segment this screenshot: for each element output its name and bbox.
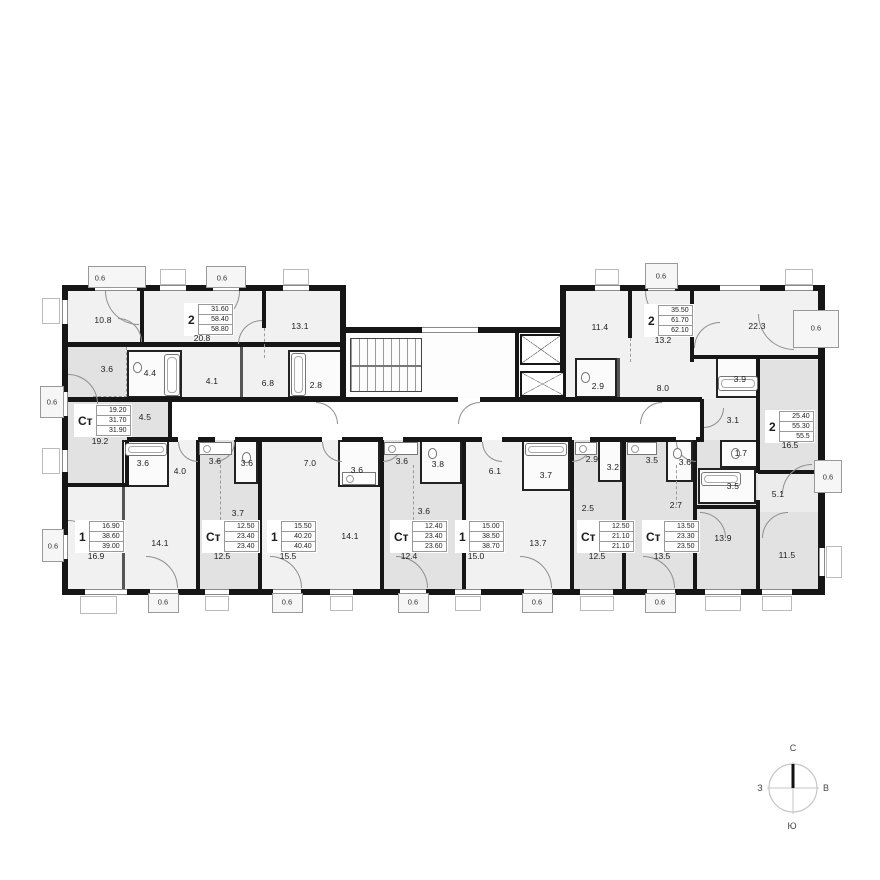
bay-window (42, 448, 60, 474)
wall-segment (515, 333, 519, 397)
window-mark (580, 589, 613, 595)
kitchen-counter (199, 442, 232, 455)
room-area-label: 13.7 (529, 538, 546, 548)
wall-segment (617, 358, 620, 397)
unit-type: 2 (185, 304, 198, 335)
unit-info-studio-b2[interactable]: Ст 12.4023.4023.60 (391, 521, 447, 552)
unit-type: 2 (766, 411, 779, 442)
dashed-line (676, 465, 677, 505)
balcony-area-label: 0.6 (655, 598, 665, 607)
window-mark (283, 285, 309, 291)
room-area-label: 1.7 (735, 448, 747, 458)
unit-main-area: 13.5 (654, 551, 671, 561)
window-mark (819, 548, 825, 576)
bay-window (705, 596, 741, 611)
unit-main-area: 15.5 (280, 551, 297, 561)
room-area-label: 3.6 (418, 506, 430, 516)
bay-window (283, 269, 309, 285)
room-area-label: 2.9 (586, 454, 598, 464)
wall-segment (340, 327, 422, 333)
balcony-area-label: 0.6 (95, 274, 105, 283)
dashed-line (630, 338, 631, 362)
bay-window (205, 596, 229, 611)
room-area-label: 3.6 (679, 457, 691, 467)
room-area-label: 4.0 (174, 466, 186, 476)
bathtub (525, 443, 567, 456)
room-area-label: 3.6 (396, 456, 408, 466)
balcony-area-label: 0.6 (47, 398, 57, 407)
bay-window (330, 596, 353, 611)
bay-window (826, 546, 842, 578)
unit-info-studio-b1[interactable]: Ст 12.5023.4023.40 (203, 521, 259, 552)
window-mark (160, 285, 186, 291)
window-mark (62, 450, 68, 472)
wall-segment (693, 440, 697, 589)
compass-west-label: З (757, 783, 762, 793)
compass-north-label: С (790, 743, 797, 753)
room-area-label: 3.6 (137, 458, 149, 468)
wall-segment (380, 440, 384, 589)
room-area-label: 2.5 (582, 503, 594, 513)
wall-segment (240, 347, 243, 397)
unit-info-1room-b2[interactable]: 1 15.5040.2040.40 (268, 521, 316, 552)
unit-type: Ст (578, 521, 599, 552)
room-area-label: 3.6 (351, 465, 363, 475)
window-mark (762, 589, 792, 595)
room-area-label: 10.8 (94, 315, 111, 325)
bathtub (291, 353, 306, 396)
unit-main-area: 16.5 (782, 440, 799, 450)
unit-main-area: 20.8 (194, 333, 211, 343)
wall-segment (756, 358, 760, 473)
room-area-label: 7.0 (304, 458, 316, 468)
kitchen-counter (627, 442, 657, 455)
window-mark (705, 589, 741, 595)
window-mark (455, 589, 481, 595)
bay-window (80, 596, 117, 614)
balcony-area-label: 0.6 (282, 598, 292, 607)
toilet (581, 372, 590, 383)
unit-main-area: 15.0 (468, 551, 485, 561)
wall-segment (693, 505, 758, 509)
dashed-line (264, 328, 265, 358)
elevator-shaft (520, 371, 565, 397)
wall-segment (235, 437, 322, 442)
wall-segment (62, 483, 129, 487)
window-mark (785, 285, 813, 291)
window-mark (85, 589, 127, 595)
balcony-area-label: 0.6 (823, 473, 833, 482)
window-mark (62, 300, 68, 324)
room-area-label: 3.5 (727, 481, 739, 491)
staircase (350, 338, 422, 392)
room-area-label: 8.0 (657, 383, 669, 393)
unit-info-studio-b4[interactable]: Ст 13.5023.3023.50 (643, 521, 699, 552)
toilet (133, 362, 142, 373)
balcony-area-label: 0.6 (811, 324, 821, 333)
room-area-label: 11.4 (592, 322, 609, 332)
unit-type: 1 (76, 521, 89, 552)
compass-rose: С Ю З В (748, 738, 840, 838)
window-mark (205, 589, 229, 595)
room-area-label: 3.6 (101, 364, 113, 374)
bay-window (160, 269, 186, 285)
wall-segment (258, 440, 262, 589)
bay-window (580, 596, 614, 611)
room-area-label: 3.5 (646, 455, 658, 465)
room-area-label: 3.6 (209, 456, 221, 466)
toilet (428, 448, 437, 459)
room-area-label: 14.1 (151, 538, 168, 548)
room-area-label: 4.5 (139, 412, 151, 422)
unit-info-1room-b3[interactable]: 1 15.0038.5038.70 (456, 521, 504, 552)
wall-segment (62, 397, 458, 402)
room-area-label: 14.1 (341, 531, 358, 541)
unit-main-area: 19.2 (92, 436, 109, 446)
unit-info-2room-right[interactable]: 2 25.4055.3055.5 (766, 411, 814, 442)
room-area-label: 13.1 (291, 321, 308, 331)
balcony-area-label: 0.6 (408, 598, 418, 607)
unit-type: 1 (456, 521, 469, 552)
room-area-label: 13.9 (714, 533, 731, 543)
room-area-label: 2.9 (592, 381, 604, 391)
dashed-line (413, 465, 414, 520)
room-area-label: 4.1 (206, 376, 218, 386)
room-area-label: 3.8 (432, 459, 444, 469)
bay-window (595, 269, 619, 285)
wall-segment (342, 437, 383, 442)
wall-segment (262, 288, 266, 328)
room-area-label: 3.2 (607, 462, 619, 472)
bay-window (785, 269, 813, 285)
window-mark (595, 285, 620, 291)
unit-type: 2 (645, 305, 658, 336)
unit-info-2room-topleft[interactable]: 2 31.6058.4058.80 (185, 304, 233, 335)
balcony-area-label: 0.6 (656, 272, 666, 281)
unit-type: 1 (268, 521, 281, 552)
wall-segment (480, 397, 702, 402)
dashed-line (220, 465, 221, 520)
room-area-label: 6.1 (489, 466, 501, 476)
compass-east-label: В (823, 783, 829, 793)
unit-type: Ст (203, 521, 224, 552)
room-area-label: 11.5 (779, 550, 796, 560)
unit-type: Ст (643, 521, 664, 552)
kitchen-counter (384, 442, 418, 455)
room-area-label: 3.7 (540, 470, 552, 480)
bathtub (164, 354, 180, 396)
unit-main-area: 13.2 (655, 335, 672, 345)
wall-segment (756, 500, 760, 589)
room-area-label: 3.7 (232, 508, 244, 518)
unit-main-area: 12.5 (214, 551, 231, 561)
wall-segment (462, 440, 466, 589)
room-area-label: 6.8 (262, 378, 274, 388)
balcony-area-label: 0.6 (217, 274, 227, 283)
room-area-label: 22.3 (748, 321, 765, 331)
wall-segment (622, 440, 626, 589)
unit-info-studio-left[interactable]: Ст 19.2031.7031.90 (75, 405, 131, 436)
room-area-label: 3.1 (727, 415, 739, 425)
bay-window (42, 298, 60, 324)
wall-segment (478, 327, 566, 333)
compass-south-label: Ю (787, 821, 796, 831)
room-area-label: 5.1 (772, 489, 784, 499)
room-area-label: 2.7 (670, 500, 682, 510)
floor-plan: 10.8 13.1 3.6 4.4 4.1 6.8 2.8 4.5 11.4 2… (0, 0, 880, 880)
bathroom (598, 440, 622, 482)
bay-window (455, 596, 481, 611)
wall-segment (570, 440, 574, 589)
window-mark (330, 589, 353, 595)
unit-type: Ст (75, 405, 96, 436)
unit-main-area: 12.5 (589, 551, 606, 561)
room-area-label: 2.8 (310, 380, 322, 390)
unit-main-area: 12.4 (401, 551, 418, 561)
room-area-label: 3.6 (241, 458, 253, 468)
unit-info-1room-b1[interactable]: 1 16.9038.6039.00 (76, 521, 124, 552)
balcony-area-label: 0.6 (532, 598, 542, 607)
unit-info-2room-topright[interactable]: 2 35.5061.7062.10 (645, 305, 693, 336)
balcony-area-label: 0.6 (48, 542, 58, 551)
balcony-area-label: 0.6 (158, 598, 168, 607)
room-area-label: 4.4 (144, 368, 156, 378)
window-mark (720, 285, 760, 291)
elevator-shaft (520, 334, 562, 365)
bay-window (762, 596, 792, 611)
unit-type: Ст (391, 521, 412, 552)
unit-main-area: 16.9 (88, 551, 105, 561)
unit-info-studio-b3[interactable]: Ст 12.5021.1021.10 (578, 521, 634, 552)
wall-segment (628, 288, 632, 338)
room-area-label: 3.9 (734, 374, 746, 384)
window-mark (422, 327, 478, 333)
bathtub (125, 443, 167, 456)
wall-segment (168, 399, 172, 439)
wall-segment (502, 437, 572, 442)
wall-segment (196, 440, 200, 589)
